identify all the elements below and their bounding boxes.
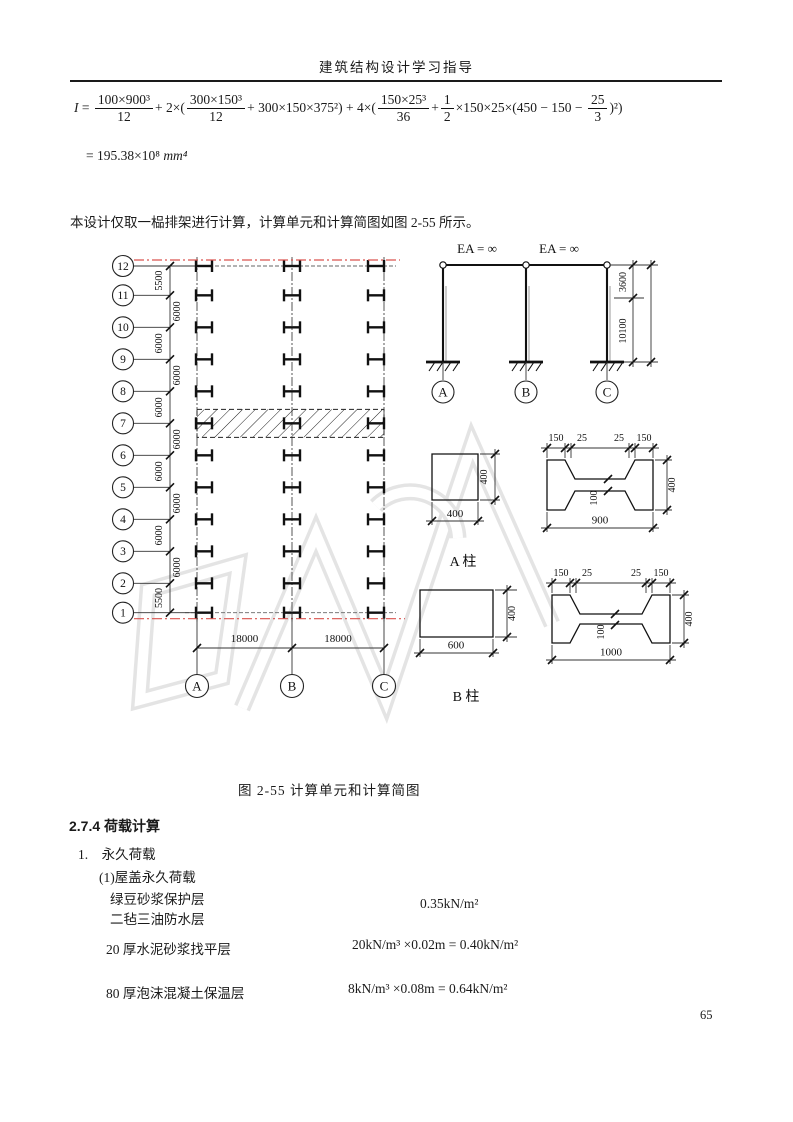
load-item-value: 0.35kN/m²	[420, 896, 478, 912]
frame-col-label: C	[603, 384, 612, 399]
a-ishape-web: 100	[589, 491, 600, 506]
page-number: 65	[700, 1008, 713, 1023]
formula-result: = 195.38×10⁸ mm⁴	[86, 148, 188, 164]
b-ishape-dim: 150	[554, 568, 569, 579]
load-item-value: 8kN/m³ ×0.08m = 0.64kN/m²	[348, 981, 507, 997]
column-marker-icon	[196, 260, 212, 272]
column-marker-icon	[196, 321, 212, 333]
grid-row-label: 10	[117, 322, 129, 334]
list-subitem-1: (1)屋盖永久荷载	[99, 866, 196, 886]
plan-bay-dim: 6000	[172, 301, 183, 321]
frame-col-label: B	[522, 384, 531, 399]
column-marker-icon	[196, 545, 212, 557]
fraction: 100×900³12	[95, 92, 153, 124]
frame-dim-3600: 3600	[618, 272, 629, 292]
b-ishape-dim: 150	[654, 568, 669, 579]
load-item-name: 二毡三油防水层	[110, 908, 205, 928]
a-square-width: 400	[447, 508, 464, 520]
b-ishape-width: 1000	[600, 647, 623, 659]
load-item-value: 20kN/m³ ×0.02m = 0.40kN/m²	[352, 937, 518, 953]
b-ishape-web: 100	[596, 625, 607, 640]
grid-row-label: 8	[120, 386, 126, 398]
grid-col-label: C	[380, 678, 389, 693]
plan-bay-dim: 6000	[172, 429, 183, 449]
grid-row-label: 6	[120, 450, 126, 462]
frame-col-label: A	[438, 384, 448, 399]
b-rect-height: 400	[507, 606, 518, 621]
grid-row-label: 9	[120, 354, 126, 366]
grid-row-label: 5	[120, 482, 126, 494]
section-heading: 2.7.4 荷载计算	[69, 816, 160, 836]
grid-row-label: 2	[120, 578, 126, 590]
grid-row-label: 7	[120, 418, 126, 430]
column-marker-icon	[196, 513, 212, 525]
column-marker-icon	[368, 385, 384, 397]
column-marker-icon	[196, 289, 212, 301]
plan-bay-dim: 6000	[154, 397, 165, 417]
plan-bay-dim: 6000	[172, 365, 183, 385]
plan-bay-dim: 5500	[154, 588, 165, 608]
plan-span-dim: 18000	[231, 633, 259, 645]
column-marker-icon	[196, 449, 212, 461]
column-marker-icon	[368, 545, 384, 557]
a-ishape-height: 400	[667, 478, 678, 493]
plan-bay-dim: 6000	[154, 525, 165, 545]
a-ishape-width: 900	[592, 515, 609, 527]
frame-dim-10100: 10100	[618, 319, 629, 344]
column-marker-icon	[368, 513, 384, 525]
column-marker-icon	[368, 577, 384, 589]
grid-row-label: 12	[117, 261, 129, 273]
column-marker-icon	[368, 353, 384, 365]
column-marker-icon	[368, 607, 384, 619]
load-item-name: 80 厚泡沫混凝土保温层	[106, 982, 244, 1002]
hinge-icon	[523, 262, 529, 268]
column-marker-icon	[368, 289, 384, 301]
column-marker-icon	[368, 321, 384, 333]
list-item-1: 1. 永久荷载	[78, 843, 156, 863]
ea-infinity-label: EA = ∞	[457, 241, 497, 256]
plan-span-dim: 18000	[324, 633, 352, 645]
column-b-label: B 柱	[453, 689, 480, 705]
a-ishape-dim: 150	[549, 433, 564, 444]
fraction: 150×25³36	[378, 92, 429, 124]
column-marker-icon	[368, 449, 384, 461]
document-page: 建筑结构设计学习指导 I = 100×900³12 + 2×( 300×150³…	[0, 0, 793, 1122]
b-rect-width: 600	[448, 640, 465, 652]
running-head: 建筑结构设计学习指导	[0, 56, 793, 76]
fraction: 12	[441, 92, 454, 124]
fraction: 300×150³12	[187, 92, 245, 124]
wps-watermark-shape	[242, 444, 552, 708]
a-ishape-dim: 25	[614, 433, 624, 444]
b-ishape-dim: 25	[631, 568, 641, 579]
frame-calculation-diagram: EA = ∞ EA = ∞ 3600 10100	[440, 241, 658, 367]
a-ishape-dim: 25	[577, 433, 587, 444]
column-marker-icon	[196, 607, 212, 619]
grid-row-label: 3	[120, 546, 126, 558]
grid-row-label: 4	[120, 514, 126, 526]
wps-watermark	[140, 444, 552, 708]
hinge-icon	[440, 262, 446, 268]
b-ishape-height: 400	[684, 612, 695, 627]
ea-infinity-label: EA = ∞	[539, 241, 579, 256]
hinge-icon	[604, 262, 610, 268]
grid-row-label: 1	[120, 607, 126, 619]
plan-bay-dim: 6000	[154, 461, 165, 481]
column-marker-icon	[196, 481, 212, 493]
fraction: 253	[588, 92, 608, 124]
figure-caption: 图 2-55 计算单元和计算简图	[238, 779, 421, 799]
grid-col-label: B	[288, 678, 297, 693]
plan-bay-dim: 6000	[172, 557, 183, 577]
column-a-sections: 400 400 A 柱 150 25 25 150	[426, 433, 678, 570]
figure-2-55: 1211109876543215500600060006000600060006…	[70, 238, 730, 730]
a-ishape-dim: 150	[637, 433, 652, 444]
a-square-height: 400	[479, 470, 490, 485]
load-item-name: 20 厚水泥砂浆找平层	[106, 938, 231, 958]
load-item-name: 绿豆砂浆保护层	[110, 888, 205, 908]
column-marker-icon	[196, 353, 212, 365]
frame-supports: ABC	[426, 362, 624, 403]
grid-col-label: A	[192, 678, 202, 693]
grid-row-label: 11	[117, 290, 128, 302]
plan-bay-dim: 6000	[172, 493, 183, 513]
body-paragraph: 本设计仅取一榀排架进行计算，计算单元和计算简图如图 2-55 所示。	[70, 211, 770, 231]
column-a-label: A 柱	[450, 554, 477, 570]
column-marker-icon	[196, 385, 212, 397]
header-rule	[70, 80, 722, 82]
column-marker-icon	[368, 260, 384, 272]
column-b-sections: 400 600 B 柱 150 25 25 150	[414, 568, 695, 705]
plan-bay-dim: 6000	[154, 333, 165, 353]
plan-bay-dim: 5500	[154, 271, 165, 291]
b-ishape-dim: 25	[582, 568, 592, 579]
moment-of-inertia-formula: I = 100×900³12 + 2×( 300×150³12 + 300×15…	[74, 92, 622, 124]
